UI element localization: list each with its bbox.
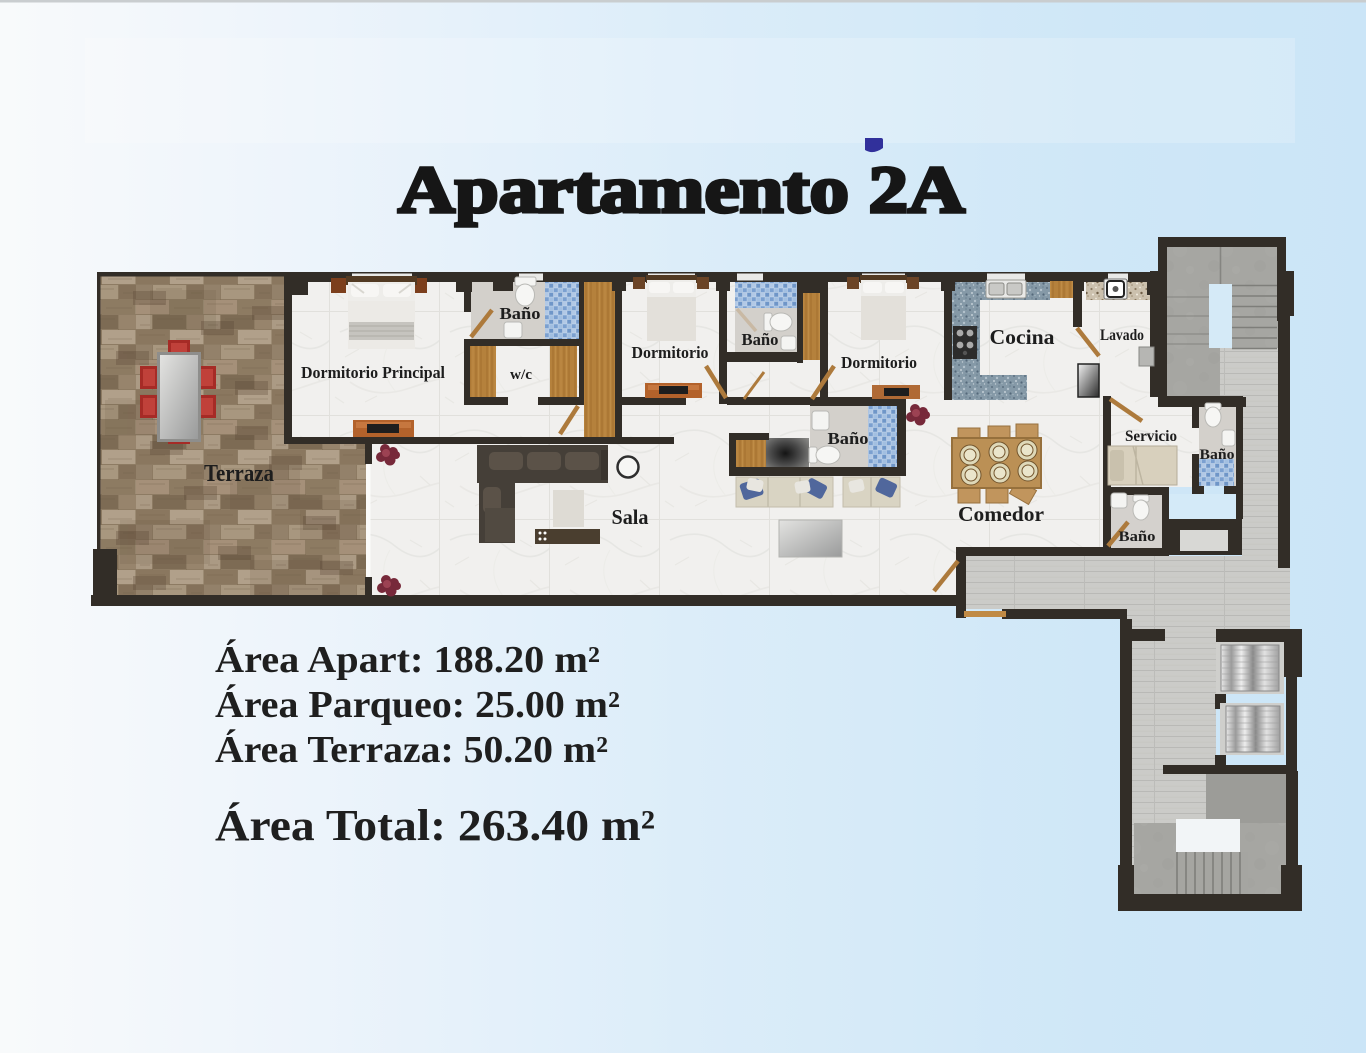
svg-text:Sala: Sala (612, 505, 649, 529)
svg-text:Baño: Baño (1119, 529, 1156, 545)
svg-text:Área Terraza: 50.20 m²: Área Terraza: 50.20 m² (215, 729, 608, 771)
svg-text:Dormitorio: Dormitorio (841, 353, 917, 372)
svg-text:Baño: Baño (828, 429, 869, 448)
svg-text:Baño: Baño (1200, 447, 1235, 463)
svg-text:Dormitorio Principal: Dormitorio Principal (301, 363, 445, 382)
svg-text:Terraza: Terraza (204, 461, 274, 487)
svg-text:w/c: w/c (510, 367, 532, 383)
svg-text:Baño: Baño (742, 330, 779, 349)
svg-text:Baño: Baño (500, 304, 541, 323)
svg-text:Área Total: 263.40 m²: Área Total: 263.40 m² (215, 801, 655, 850)
svg-text:Comedor: Comedor (958, 502, 1044, 526)
svg-text:Área Parqueo: 25.00 m²: Área Parqueo: 25.00 m² (215, 684, 620, 726)
svg-text:Área Apart: 188.20 m²: Área Apart: 188.20 m² (215, 639, 600, 681)
svg-text:Apartamento 2A: Apartamento 2A (398, 153, 965, 227)
svg-text:Lavado: Lavado (1100, 327, 1144, 344)
svg-text:Dormitorio: Dormitorio (632, 343, 709, 362)
svg-text:Cocina: Cocina (990, 325, 1056, 349)
svg-text:Servicio: Servicio (1125, 428, 1177, 445)
